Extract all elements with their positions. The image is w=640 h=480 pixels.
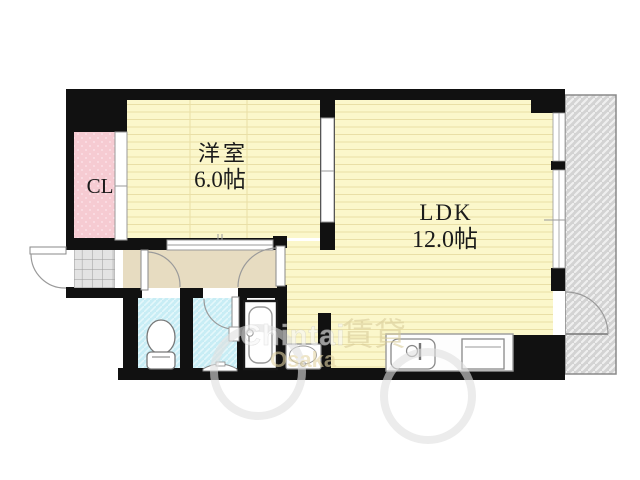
entrance-door-leaf [30, 247, 66, 254]
toilet-door-leaf [141, 250, 148, 290]
entrance-opening [66, 250, 74, 287]
bathroom-door-leaf [232, 297, 239, 331]
watermark-kanji: 賃貸 [342, 316, 406, 352]
wall-corridor-ldk-bottom [277, 285, 287, 298]
wall-toilet-left [123, 288, 138, 380]
kitchen-workspace [462, 339, 504, 369]
floor-plan-image: CL 洋室 6.0帖 LDK 12.0帖 Chintai Osaka 賃貸 [0, 0, 640, 480]
wall-top [66, 89, 565, 100]
western-room-size: 6.0帖 [194, 167, 246, 192]
wall-corner-bottom-right [513, 335, 565, 380]
toilet-fixture [147, 320, 175, 369]
ldk-door-leaf [276, 246, 285, 286]
entrance-door-swing [31, 254, 66, 288]
ldk-size: 12.0帖 [412, 226, 478, 253]
balcony-door-opening [553, 291, 565, 335]
entry-tile-floor [74, 248, 115, 288]
western-ldk-sliding-door [321, 118, 334, 222]
wall-right-a [551, 161, 565, 170]
ldk-label: LDK [419, 200, 472, 225]
wall-toilet-bath-divider [180, 298, 193, 380]
entry-step [115, 248, 123, 288]
wall-corridor-bottom-a [180, 288, 203, 298]
watermark-latin2: Osaka [270, 347, 337, 372]
floor-plan-svg: CL 洋室 6.0帖 LDK 12.0帖 Chintai Osaka 賃貸 [0, 0, 640, 480]
closet-label: CL [87, 174, 114, 198]
wall-corner-top-right [531, 89, 565, 113]
western-room-label: 洋室 [198, 141, 248, 166]
ldk-window-upper [553, 113, 565, 161]
wall-closet-top [66, 89, 127, 132]
wall-right-b [551, 268, 565, 291]
